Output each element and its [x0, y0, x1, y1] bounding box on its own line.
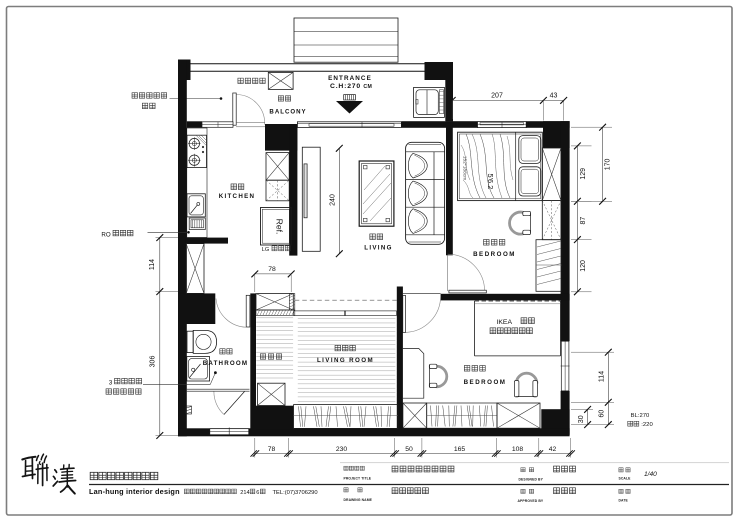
svg-text:BALCONY: BALCONY	[269, 109, 306, 116]
svg-text:DESIGNED BY: DESIGNED BY	[519, 477, 544, 481]
svg-text:120: 120	[580, 260, 587, 272]
svg-text:Ref.: Ref.	[275, 219, 285, 235]
svg-text:165: 165	[454, 446, 466, 453]
svg-text:230: 230	[336, 446, 348, 453]
svg-text::220: :220	[641, 422, 653, 428]
svg-text:1/40: 1/40	[644, 471, 657, 478]
svg-text:LG: LG	[262, 247, 269, 253]
svg-text:BEDROOM: BEDROOM	[473, 251, 516, 258]
svg-text:LIVING: LIVING	[364, 244, 392, 251]
svg-text:170: 170	[604, 158, 611, 170]
svg-text:APPROVED BY: APPROVED BY	[518, 499, 544, 503]
svg-text:C.H:270: C.H:270	[330, 83, 361, 90]
svg-text:ENTRANCE: ENTRANCE	[328, 75, 372, 82]
svg-text:DATE: DATE	[619, 498, 629, 502]
svg-text:87: 87	[580, 217, 587, 225]
svg-text:PROJECT TITLE: PROJECT TITLE	[344, 476, 372, 480]
svg-text:42: 42	[549, 446, 557, 453]
svg-text:RO: RO	[101, 231, 110, 238]
svg-text:129: 129	[580, 168, 587, 180]
svg-text:CM: CM	[363, 84, 372, 90]
svg-text:6: 6	[256, 490, 259, 496]
svg-text:50: 50	[405, 446, 413, 453]
svg-text:DRAWING NAME: DRAWING NAME	[344, 498, 373, 502]
svg-text:114: 114	[149, 259, 156, 270]
svg-text:78: 78	[268, 446, 276, 453]
svg-text:3: 3	[109, 379, 113, 386]
svg-text:5'6.2: 5'6.2	[486, 174, 495, 190]
svg-text:108: 108	[512, 446, 524, 453]
svg-text:KITCHEN: KITCHEN	[219, 193, 256, 200]
svg-text:TEL:(07)3706290: TEL:(07)3706290	[273, 490, 318, 496]
svg-text:30: 30	[578, 415, 585, 423]
svg-text:Lan-hung interior design: Lan-hung interior design	[89, 487, 180, 496]
svg-text:306: 306	[150, 356, 157, 368]
svg-text:BEDROOM: BEDROOM	[464, 379, 507, 386]
svg-text:240: 240	[330, 194, 337, 206]
svg-text:152*188cm: 152*188cm	[461, 156, 467, 180]
svg-text:207: 207	[491, 93, 503, 100]
svg-text:SCALE: SCALE	[619, 477, 632, 481]
svg-text:IKEA: IKEA	[497, 319, 513, 326]
svg-text:BATHROOM: BATHROOM	[203, 360, 249, 367]
svg-text:78: 78	[268, 266, 276, 273]
svg-text:214: 214	[240, 490, 249, 496]
svg-text:60: 60	[599, 410, 606, 418]
svg-text:114: 114	[599, 371, 606, 382]
svg-text:LIVING ROOM: LIVING ROOM	[317, 357, 374, 364]
svg-text:43: 43	[550, 93, 558, 100]
svg-text:BL:270: BL:270	[631, 413, 650, 419]
